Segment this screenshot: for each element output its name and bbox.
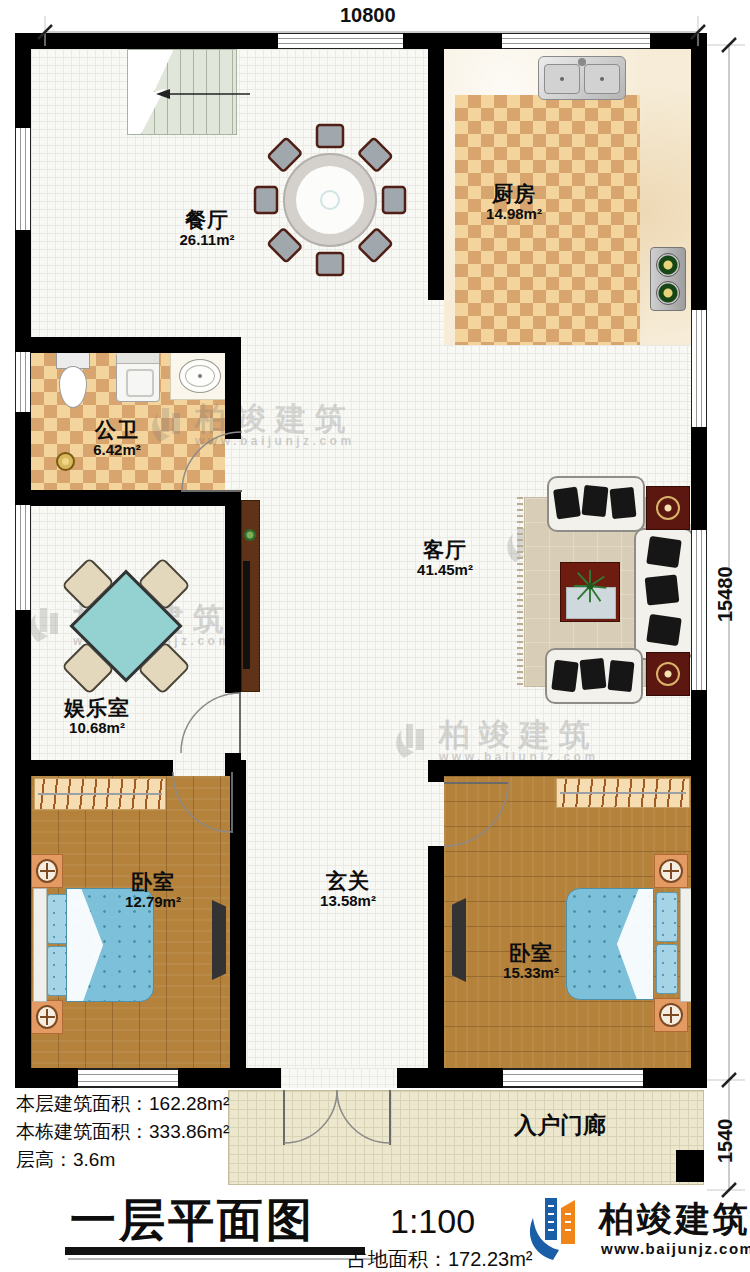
stat-value: 333.86m²	[149, 1121, 229, 1142]
stat-value: 3.6m	[73, 1149, 115, 1170]
toilet-bowl	[59, 366, 87, 408]
room-label-entertainment: 娱乐室 10.68m²	[64, 696, 130, 736]
wall	[178, 1068, 281, 1088]
bed-sheet-fold	[617, 889, 653, 999]
game-table-set	[60, 560, 188, 688]
plant-icon	[244, 529, 256, 541]
window	[78, 1068, 178, 1088]
room-area: 6.42m²	[93, 442, 141, 459]
staircase-direction-arrow-icon	[152, 86, 256, 102]
wall	[397, 1068, 503, 1088]
faucet	[578, 58, 586, 66]
window	[15, 505, 31, 610]
vanity-counter	[170, 352, 227, 400]
sofa-cushion	[607, 660, 634, 692]
washing-machine	[116, 352, 160, 402]
room-label-bedroom-left: 卧室 12.79m²	[125, 870, 181, 910]
kitchen-sink	[538, 56, 626, 100]
floor-entry-gap	[281, 1068, 397, 1088]
bathroom-door	[182, 432, 242, 492]
burner-icon	[656, 281, 680, 305]
wall	[225, 353, 241, 439]
sofa-bottom	[545, 648, 643, 704]
stat-value: 162.28m²	[149, 1093, 229, 1114]
pillow	[656, 944, 678, 994]
wall	[15, 610, 31, 1088]
side-table	[646, 486, 690, 530]
room-area: 10.68m²	[64, 720, 130, 737]
wash-basin	[179, 359, 221, 393]
land-area-label: 占地面积：	[348, 1248, 448, 1270]
entertainment-door	[181, 693, 241, 753]
porch-pillar	[676, 1150, 704, 1182]
stat-storey-height: 层高：3.6m	[16, 1146, 229, 1174]
wall	[428, 760, 707, 776]
room-label-bedroom-right: 卧室 15.33m²	[503, 941, 559, 981]
title-underline-thin	[68, 1258, 376, 1260]
room-label-dining: 餐厅 26.11m²	[179, 208, 234, 248]
wardrobe	[556, 778, 690, 808]
wall	[31, 337, 241, 353]
plant-icon	[569, 565, 611, 607]
pillow	[656, 892, 678, 942]
room-name: 公卫	[93, 418, 141, 442]
land-area: 占地面积：172.23m²	[348, 1246, 533, 1272]
stat-label: 层高：	[16, 1149, 73, 1170]
plan-title: 一层平面图	[70, 1190, 315, 1252]
wall	[15, 230, 31, 352]
sofa-cushion	[579, 658, 606, 690]
room-name: 卧室	[125, 870, 181, 894]
entry-double-door	[278, 1088, 396, 1150]
land-area-value: 172.23m²	[448, 1248, 533, 1270]
side-table	[646, 652, 690, 696]
sofa-cushion	[645, 574, 680, 605]
sofa-cushion	[581, 485, 608, 517]
wall	[428, 49, 444, 300]
drain-dot	[198, 374, 202, 378]
room-label-kitchen: 厨房 14.98m²	[486, 182, 542, 222]
sofa-right	[634, 528, 694, 660]
sofa-cushion	[551, 660, 578, 693]
wardrobe-rod	[38, 793, 163, 795]
room-name: 卧室	[503, 941, 559, 965]
washer-panel	[117, 353, 159, 364]
sink-bowl	[544, 64, 580, 94]
sofa-top	[547, 476, 645, 532]
wall	[643, 1068, 707, 1088]
sofa-cushion	[646, 614, 682, 646]
room-name: 娱乐室	[64, 696, 130, 720]
nightstand	[31, 854, 63, 888]
washer-door	[126, 369, 154, 397]
coffee-table	[560, 562, 620, 622]
room-area: 41.45m²	[417, 562, 473, 579]
nightstand	[654, 854, 688, 888]
tv-cabinet	[241, 500, 260, 692]
room-area: 14.98m²	[486, 206, 542, 223]
nightstand	[654, 998, 688, 1032]
window	[15, 128, 31, 230]
stat-label: 本层建筑面积：	[16, 1093, 149, 1114]
wall	[15, 490, 241, 506]
sofa-cushion	[609, 487, 636, 519]
stat-floor-area: 本层建筑面积：162.28m²	[16, 1090, 229, 1118]
wall	[15, 760, 173, 776]
wall	[428, 776, 444, 782]
room-name: 客厅	[417, 538, 473, 562]
room-name: 餐厅	[179, 208, 234, 232]
wall	[428, 846, 444, 1068]
room-area: 26.11m²	[179, 232, 234, 249]
brand-logo-icon	[525, 1192, 595, 1266]
brand-website: www.baijunjz.com	[601, 1240, 750, 1257]
stove	[650, 247, 686, 311]
brand-company-name: 柏竣建筑	[599, 1196, 750, 1243]
bed-headboard	[33, 888, 47, 1002]
floor-plan-canvas: 柏竣建筑www.baijunjz.com 柏竣建筑www.baijunjz.co…	[0, 0, 750, 1272]
burner-icon	[656, 253, 680, 277]
room-label-porch: 入户门廊	[514, 1110, 606, 1141]
window	[15, 352, 31, 412]
wardrobe	[34, 778, 166, 810]
room-name: 厨房	[486, 182, 542, 206]
title-underline	[65, 1247, 365, 1255]
floor-kitchen-checker	[455, 95, 640, 345]
tv-icon	[243, 561, 250, 669]
sofa-cushion	[553, 486, 581, 519]
stat-building-area: 本栋建筑面积：333.86m²	[16, 1118, 229, 1146]
bedroom-right-door	[444, 782, 508, 846]
dimension-height: 15480	[714, 566, 737, 622]
floor-drain	[56, 452, 75, 471]
wall	[15, 1068, 78, 1088]
room-name: 玄关	[320, 869, 376, 893]
dimension-width: 10800	[340, 4, 396, 27]
stat-label: 本栋建筑面积：	[16, 1121, 149, 1142]
room-area: 12.79m²	[125, 894, 181, 911]
room-area: 13.58m²	[320, 893, 376, 910]
room-label-bathroom: 公卫 6.42m²	[93, 418, 141, 458]
area-stats: 本层建筑面积：162.28m² 本栋建筑面积：333.86m² 层高：3.6m	[16, 1090, 229, 1174]
rug-fringe	[517, 497, 523, 685]
room-label-foyer: 玄关 13.58m²	[320, 869, 376, 909]
room-area: 15.33m²	[503, 965, 559, 982]
sofa-cushion	[646, 536, 682, 568]
sink-bowl	[584, 64, 620, 94]
brand-logo: 柏竣建筑 www.baijunjz.com	[525, 1192, 747, 1268]
tv-icon	[212, 900, 226, 980]
tv-icon	[452, 898, 466, 982]
dimension-porch-height: 1540	[714, 1119, 737, 1164]
toilet	[56, 352, 88, 410]
room-label-living: 客厅 41.45m²	[417, 538, 473, 578]
bedroom-left-door	[173, 772, 233, 832]
bed-sheet-fold	[67, 889, 103, 1001]
plan-scale: 1:100	[390, 1202, 475, 1241]
window	[503, 1068, 643, 1088]
wall	[225, 506, 241, 693]
dining-table-set	[252, 122, 408, 278]
bed	[566, 888, 654, 1000]
nightstand	[31, 1000, 63, 1034]
wardrobe-rod	[560, 792, 687, 794]
